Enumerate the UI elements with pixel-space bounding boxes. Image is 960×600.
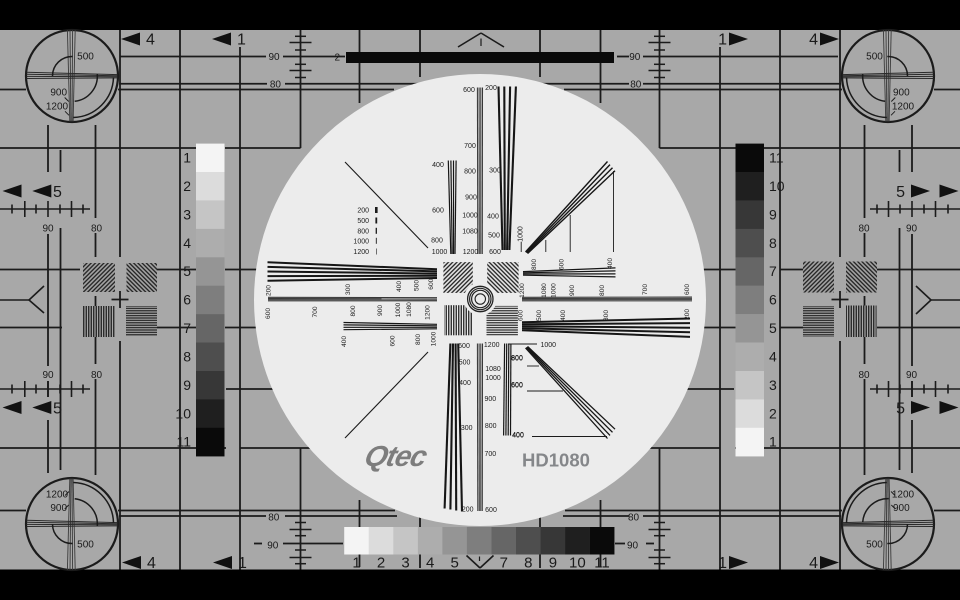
svg-text:1: 1 [183,150,191,166]
svg-text:300: 300 [489,168,501,175]
svg-text:5: 5 [896,401,905,418]
svg-text:8: 8 [183,348,191,364]
svg-text:600: 600 [684,284,691,295]
svg-text:1: 1 [718,555,727,572]
svg-text:4: 4 [183,235,191,251]
svg-text:2: 2 [334,53,340,64]
svg-text:300: 300 [345,284,352,295]
svg-text:200: 200 [462,507,474,514]
svg-text:1080: 1080 [485,366,501,373]
svg-text:11: 11 [176,434,191,450]
svg-text:HD1080: HD1080 [522,450,590,471]
svg-text:1000: 1000 [353,238,369,245]
svg-text:4: 4 [426,555,434,572]
svg-text:1: 1 [769,434,777,450]
svg-text:400: 400 [512,433,524,440]
svg-text:1200: 1200 [484,342,500,349]
svg-text:400: 400 [607,258,614,269]
svg-text:1200: 1200 [353,249,369,256]
svg-text:600: 600 [390,335,397,346]
svg-text:600: 600 [511,383,523,390]
svg-text:1200: 1200 [892,490,915,501]
svg-text:600: 600 [428,278,435,289]
svg-text:11: 11 [594,555,610,572]
svg-text:90: 90 [42,224,54,235]
svg-text:300: 300 [461,425,473,432]
svg-text:500: 500 [77,540,94,551]
svg-text:11: 11 [769,150,784,166]
svg-text:6: 6 [183,292,191,308]
svg-text:1000: 1000 [518,226,525,242]
svg-text:600: 600 [458,343,470,350]
svg-text:900: 900 [893,88,910,99]
svg-text:200: 200 [266,285,273,296]
svg-text:80: 80 [270,79,282,90]
svg-text:80: 80 [91,370,103,381]
svg-text:1: 1 [718,32,727,49]
svg-text:400: 400 [432,162,444,169]
svg-text:600: 600 [485,507,497,514]
svg-text:4: 4 [769,348,777,364]
svg-text:80: 80 [858,224,870,235]
svg-text:1080: 1080 [406,302,413,317]
svg-text:800: 800 [415,334,422,345]
svg-text:900: 900 [50,88,67,99]
svg-text:1200: 1200 [892,101,915,112]
svg-text:5: 5 [183,263,191,279]
svg-text:500: 500 [488,233,500,240]
svg-text:600: 600 [517,310,524,321]
svg-text:1: 1 [237,32,246,49]
svg-text:600: 600 [265,308,272,319]
svg-text:9: 9 [769,206,777,222]
svg-text:1000: 1000 [551,283,558,298]
svg-text:500: 500 [536,310,543,321]
svg-text:600: 600 [432,208,444,215]
svg-text:1200: 1200 [519,283,526,298]
svg-text:4: 4 [147,555,156,572]
svg-text:900: 900 [377,305,384,316]
svg-text:90: 90 [42,370,54,381]
svg-text:300: 300 [603,310,610,321]
svg-text:1: 1 [238,555,247,572]
svg-text:400: 400 [560,310,567,321]
svg-text:10: 10 [569,555,586,572]
svg-text:90: 90 [627,541,639,552]
svg-text:5: 5 [53,401,62,418]
svg-text:10: 10 [769,178,785,194]
svg-text:800: 800 [531,259,538,270]
svg-text:8: 8 [769,235,777,251]
svg-text:1200: 1200 [425,305,432,320]
svg-text:900: 900 [893,503,910,514]
svg-text:4: 4 [146,32,155,49]
svg-text:200: 200 [684,309,691,320]
svg-text:7: 7 [183,320,191,336]
svg-text:800: 800 [350,305,357,316]
svg-text:9: 9 [183,377,191,393]
svg-text:4: 4 [809,32,818,49]
svg-text:800: 800 [599,285,606,296]
svg-text:Qtec: Qtec [361,440,430,472]
svg-text:1000: 1000 [485,375,501,382]
svg-text:800: 800 [464,169,476,176]
svg-text:700: 700 [484,451,496,458]
svg-text:90: 90 [267,541,279,552]
svg-text:5: 5 [451,555,459,572]
svg-text:3: 3 [401,555,409,572]
svg-text:90: 90 [906,224,918,235]
svg-text:900: 900 [569,285,576,296]
svg-text:700: 700 [642,284,649,295]
svg-text:800: 800 [357,228,369,235]
svg-text:700: 700 [464,143,476,150]
svg-text:90: 90 [268,52,280,63]
svg-text:5: 5 [896,184,905,201]
svg-text:2: 2 [183,178,191,194]
svg-text:700: 700 [312,306,319,317]
svg-text:500: 500 [414,280,421,291]
svg-text:900: 900 [484,396,496,403]
svg-text:1000: 1000 [432,249,448,256]
svg-text:500: 500 [866,52,883,63]
svg-text:800: 800 [511,356,523,363]
svg-text:2: 2 [769,405,777,421]
svg-text:5: 5 [53,184,62,201]
svg-text:6: 6 [769,292,777,308]
svg-text:500: 500 [357,218,369,225]
svg-text:400: 400 [459,380,471,387]
svg-text:200: 200 [357,208,369,215]
svg-text:1000: 1000 [541,342,557,349]
svg-text:2: 2 [377,555,385,572]
svg-text:1: 1 [352,555,360,572]
svg-text:600: 600 [489,249,501,256]
svg-text:80: 80 [268,513,280,524]
svg-text:400: 400 [396,281,403,292]
svg-text:200: 200 [485,85,497,92]
svg-text:9: 9 [549,555,557,572]
svg-text:1000: 1000 [462,213,478,220]
svg-text:500: 500 [459,360,471,367]
svg-text:600: 600 [463,87,475,94]
svg-text:90: 90 [906,370,918,381]
svg-text:10: 10 [175,405,191,421]
svg-text:80: 80 [630,79,642,90]
svg-text:7: 7 [769,263,777,279]
svg-text:5: 5 [769,320,777,336]
svg-text:800: 800 [485,423,497,430]
svg-text:900: 900 [465,195,477,202]
svg-text:500: 500 [77,52,94,63]
svg-text:1200: 1200 [463,249,479,256]
svg-text:400: 400 [341,336,348,347]
svg-text:400: 400 [487,214,499,221]
svg-text:600: 600 [559,259,566,270]
svg-text:500: 500 [866,540,883,551]
svg-text:1080: 1080 [462,229,478,236]
svg-text:1000: 1000 [431,331,438,346]
svg-text:3: 3 [183,206,191,222]
svg-text:7: 7 [500,555,508,572]
svg-text:90: 90 [629,52,641,63]
svg-text:80: 80 [91,224,103,235]
svg-text:1000: 1000 [395,302,402,317]
svg-text:80: 80 [628,513,640,524]
svg-text:4: 4 [809,555,818,572]
svg-text:800: 800 [431,238,443,245]
svg-text:8: 8 [524,555,532,572]
svg-text:1200: 1200 [46,101,69,112]
svg-text:80: 80 [858,370,870,381]
svg-text:3: 3 [769,377,777,393]
svg-text:1080: 1080 [541,283,548,298]
